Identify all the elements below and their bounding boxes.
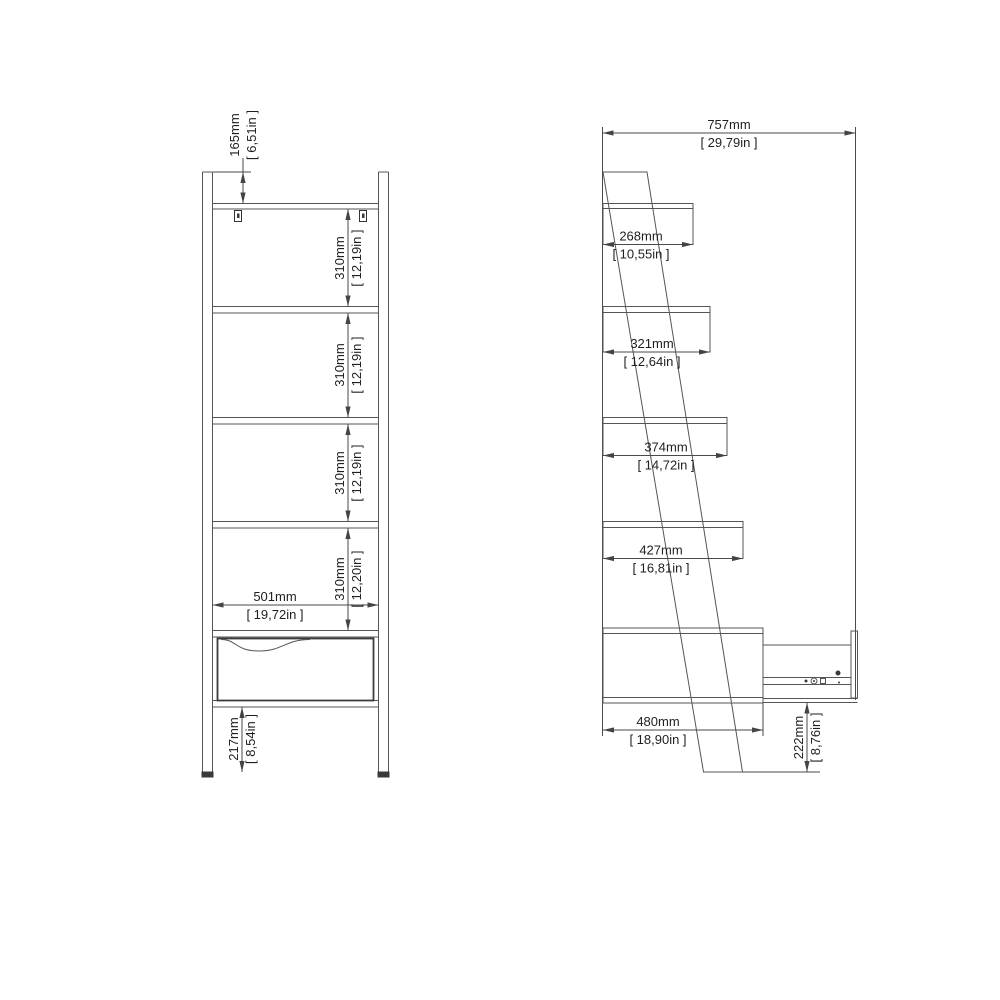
- dim-base-clearance: 222mm [ 8,76in ]: [743, 703, 824, 773]
- drawer-box-side: [603, 628, 763, 703]
- dim-total-depth: 757mm [ 29,79in ]: [603, 117, 856, 150]
- dim-427-mm: 427mm: [639, 543, 682, 558]
- dim-gap-4: 310mm [ 12,20in ]: [332, 528, 364, 631]
- dim-501-mm: 501mm: [253, 589, 296, 604]
- dim-757-mm: 757mm: [707, 117, 750, 132]
- left-rail: [202, 172, 214, 778]
- dim-757-in: [ 29,79in ]: [700, 135, 757, 150]
- dim-165-mm: 165mm: [227, 113, 242, 156]
- dim-374-mm: 374mm: [644, 440, 687, 455]
- dim-222-mm: 222mm: [791, 716, 806, 759]
- right-foot: [378, 772, 390, 778]
- drawer-front: [218, 639, 374, 701]
- dim-shelf-depth-1: 268mm [ 10,55in ]: [603, 229, 693, 262]
- cam-fitting-left: [235, 211, 242, 222]
- dim-base-height: 217mm [ 8,54in ]: [226, 707, 258, 772]
- dim-gap-3: 310mm [ 12,19in ]: [332, 424, 364, 522]
- dim-gap1-mm: 310mm: [332, 236, 347, 279]
- dim-gap2-in: [ 12,19in ]: [349, 336, 364, 393]
- dim-gap3-in: [ 12,19in ]: [349, 444, 364, 501]
- dim-165-in: [ 6,51in ]: [244, 110, 259, 160]
- side-view: 757mm [ 29,79in ] 268mm [ 10,55in ] 321m…: [603, 117, 858, 772]
- dim-gap1-in: [ 12,19in ]: [349, 229, 364, 286]
- dim-top-offset: 165mm [ 6,51in ]: [213, 110, 259, 203]
- dim-gap-1: 310mm [ 12,19in ]: [332, 209, 364, 307]
- dim-gap4-in: [ 12,20in ]: [349, 550, 364, 607]
- dim-268-in: [ 10,55in ]: [612, 247, 669, 262]
- right-rail: [378, 172, 390, 778]
- front-view: 165mm [ 6,51in ] 310mm [ 12,19in ] 310mm…: [202, 110, 390, 777]
- wall-bracket: [851, 631, 858, 698]
- drawing-svg: 165mm [ 6,51in ] 310mm [ 12,19in ] 310mm…: [0, 0, 1000, 1000]
- left-foot: [202, 772, 214, 778]
- dim-217-mm: 217mm: [226, 717, 241, 760]
- dim-374-in: [ 14,72in ]: [637, 458, 694, 473]
- dim-gap-2: 310mm [ 12,19in ]: [332, 313, 364, 418]
- dim-501-in: [ 19,72in ]: [246, 607, 303, 622]
- dim-480-in: [ 18,90in ]: [629, 732, 686, 747]
- cam-fitting-right: [360, 211, 367, 222]
- dim-shelf-depth-2: 321mm [ 12,64in ]: [603, 336, 710, 369]
- dim-268-mm: 268mm: [619, 229, 662, 244]
- handle-groove: [221, 640, 310, 652]
- dim-217-in: [ 8,54in ]: [243, 714, 258, 764]
- dim-shelf-depth-3: 374mm [ 14,72in ]: [603, 440, 727, 473]
- dim-shelf-depth-4: 427mm [ 16,81in ]: [603, 543, 743, 576]
- dim-321-mm: 321mm: [630, 336, 673, 351]
- dim-222-in: [ 8,76in ]: [808, 713, 823, 763]
- drawer-slide: [763, 631, 858, 703]
- dim-427-in: [ 16,81in ]: [632, 561, 689, 576]
- dim-gap2-mm: 310mm: [332, 343, 347, 386]
- dim-gap4-mm: 310mm: [332, 557, 347, 600]
- dim-gap3-mm: 310mm: [332, 451, 347, 494]
- dim-321-in: [ 12,64in ]: [623, 354, 680, 369]
- dim-drawer-depth: 480mm [ 18,90in ]: [603, 703, 763, 747]
- dim-480-mm: 480mm: [636, 714, 679, 729]
- furniture-dimension-drawing: 165mm [ 6,51in ] 310mm [ 12,19in ] 310mm…: [0, 0, 1000, 1000]
